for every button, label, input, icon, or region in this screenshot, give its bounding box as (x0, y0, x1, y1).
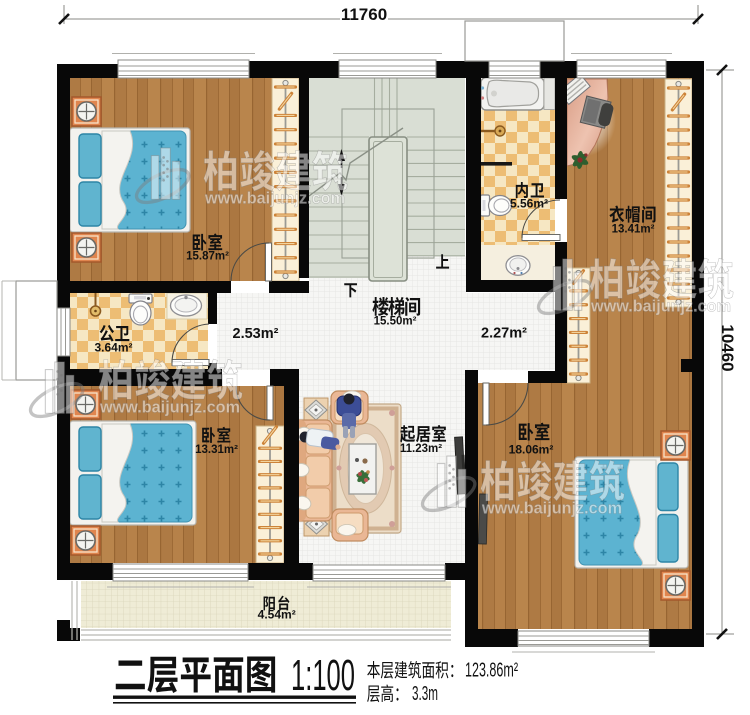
svg-text:18.06m²: 18.06m² (509, 443, 554, 457)
svg-text:15.50m²: 15.50m² (374, 316, 417, 328)
svg-text:5.56m²: 5.56m² (510, 197, 548, 211)
svg-text:3.64m²: 3.64m² (94, 341, 132, 355)
svg-text:www.baijunjz.com: www.baijunjz.com (204, 190, 345, 208)
svg-text:3.3m: 3.3m (412, 683, 438, 705)
svg-text:123.86m²: 123.86m² (465, 660, 518, 682)
svg-text:www.baijunjz.com: www.baijunjz.com (99, 399, 240, 417)
svg-text:4.54m²: 4.54m² (258, 608, 296, 622)
svg-text:13.41m²: 13.41m² (612, 224, 655, 236)
svg-text:11760: 11760 (341, 5, 387, 24)
svg-text:www.baijunjz.com: www.baijunjz.com (590, 298, 731, 316)
svg-text:11.23m²: 11.23m² (400, 443, 442, 455)
svg-text:13.31m²: 13.31m² (195, 444, 238, 456)
svg-text:15.87m²: 15.87m² (186, 251, 229, 263)
svg-text:10460: 10460 (718, 324, 737, 371)
svg-text:2.27m²: 2.27m² (481, 326, 527, 342)
svg-text:2.53m²: 2.53m² (233, 326, 279, 342)
svg-text:1:100: 1:100 (291, 651, 355, 700)
svg-text:www.baijunjz.com: www.baijunjz.com (481, 500, 622, 518)
